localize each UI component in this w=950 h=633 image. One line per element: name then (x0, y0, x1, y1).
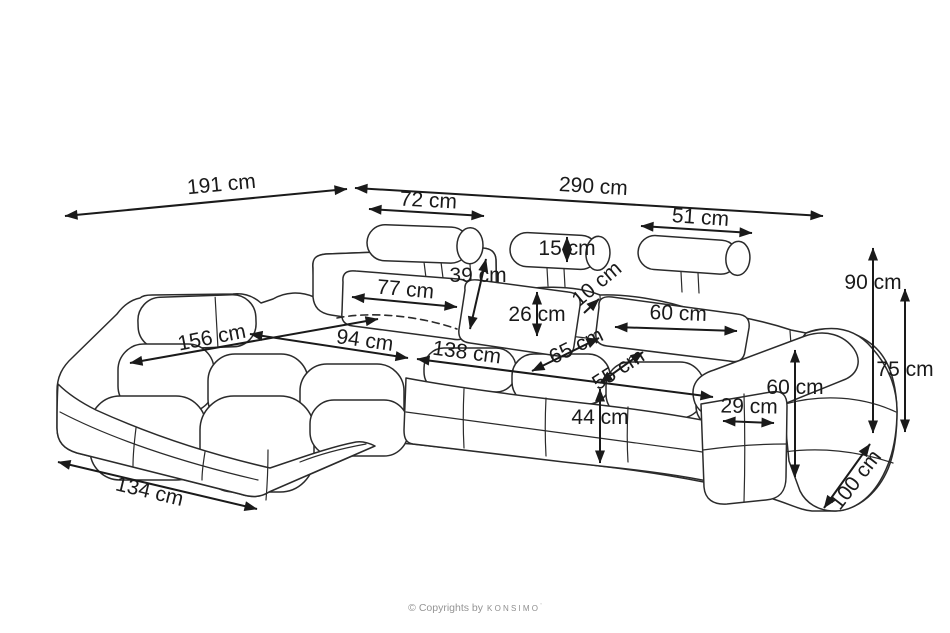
dim-label: 26 cm (508, 303, 565, 326)
dim-label: 51 cm (671, 204, 730, 231)
dim-label: 90 cm (844, 271, 901, 294)
sofa-dimension-diagram: 191 cm 290 cm 72 cm 51 cm 15 cm 39 cm 77… (0, 0, 950, 633)
diagram-svg: 191 cm 290 cm 72 cm 51 cm 15 cm 39 cm 77… (0, 0, 950, 633)
brand-logo-text: konsimo° (487, 600, 542, 614)
dim-headrest-roll-height: 15 cm (538, 237, 595, 262)
headrest-post (547, 268, 565, 287)
dim-label: 15 cm (538, 237, 595, 260)
dim-label: 290 cm (558, 173, 628, 200)
dim-left-headrest-width: 72 cm (369, 188, 484, 216)
dim-chaise-side-total-length: 191 cm (65, 170, 347, 216)
dim-label: 29 cm (720, 395, 778, 419)
dim-label: 39 cm (449, 264, 506, 287)
dim-label: 44 cm (571, 406, 628, 429)
dim-right-headrest-width: 51 cm (641, 204, 752, 233)
headrest-post (681, 272, 699, 293)
dim-label: 72 cm (399, 188, 457, 214)
headrest-right (637, 234, 751, 276)
headrest-left (366, 224, 483, 264)
copyright-text: © Copyrights by (408, 602, 483, 614)
copyright-line: © Copyrights by konsimo° (408, 600, 542, 614)
dim-label: 191 cm (186, 170, 257, 199)
dim-label: 75 cm (876, 358, 933, 381)
dim-label: 60 cm (649, 301, 707, 326)
